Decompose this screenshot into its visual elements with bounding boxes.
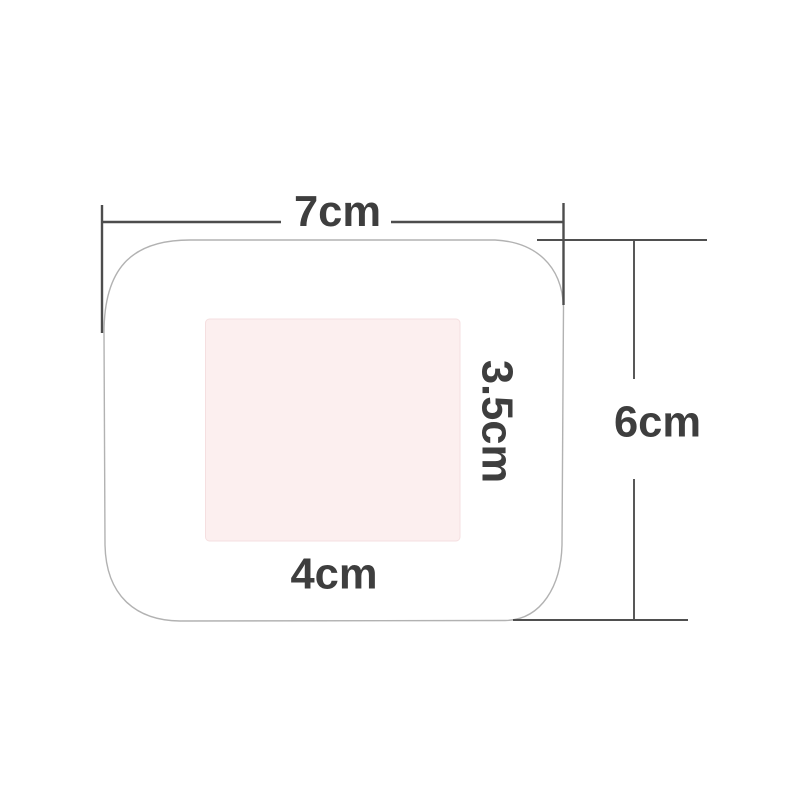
svg-text:6cm: 6cm	[614, 399, 701, 447]
svg-text:3.5cm: 3.5cm	[473, 360, 521, 483]
svg-text:4cm: 4cm	[290, 551, 377, 599]
svg-text:7cm: 7cm	[294, 188, 381, 236]
